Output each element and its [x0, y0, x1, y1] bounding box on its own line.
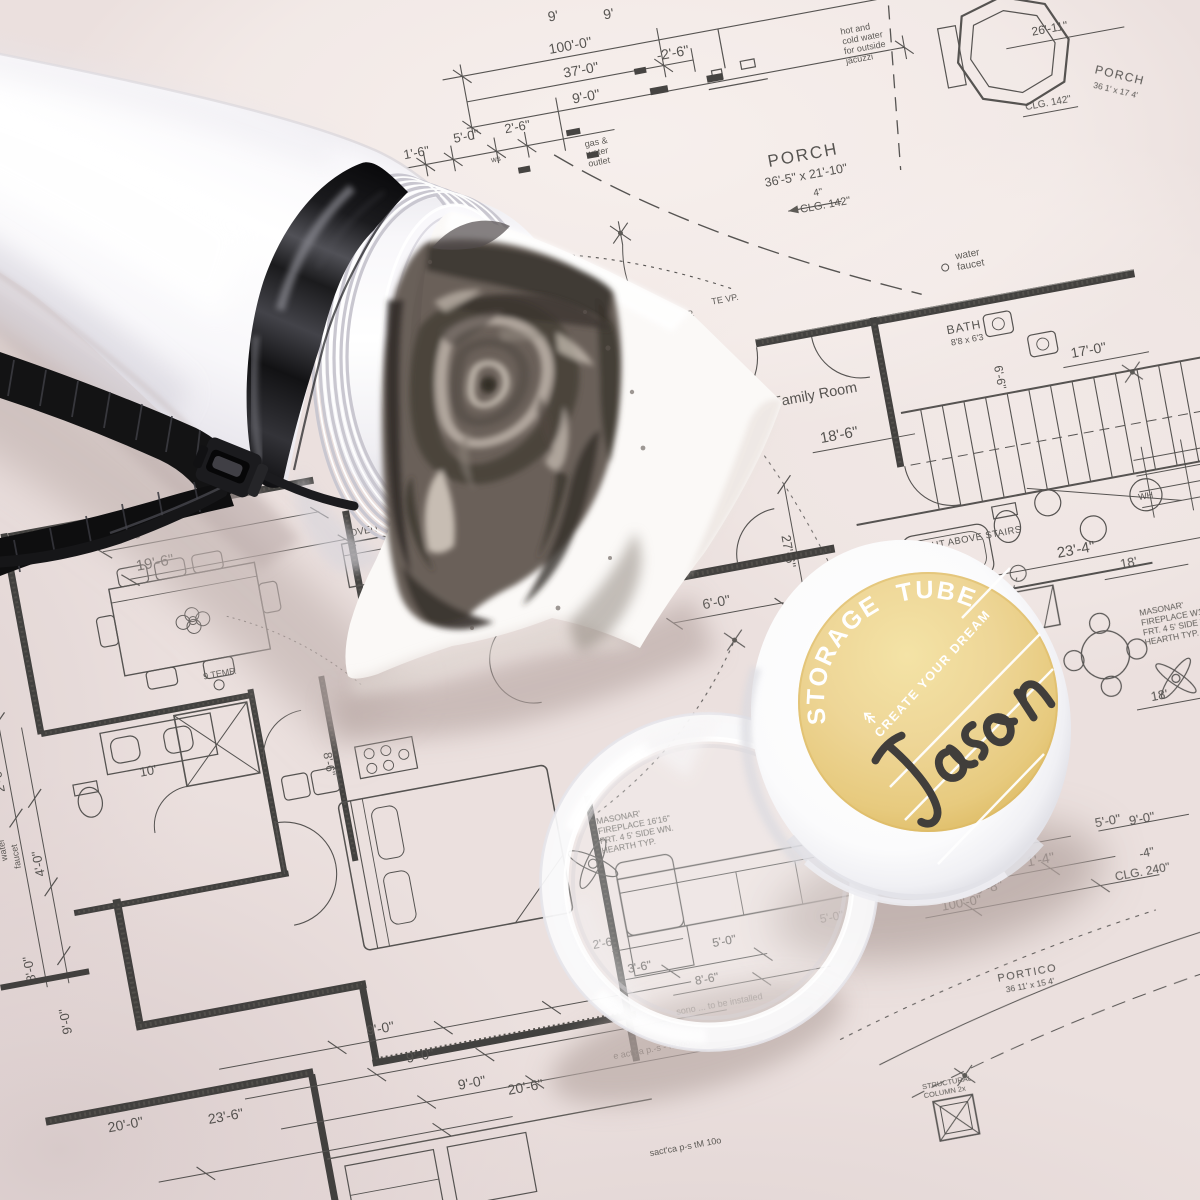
svg-text:-4": -4" [1138, 844, 1155, 860]
svg-text:18': 18' [1149, 686, 1168, 704]
svg-text:10': 10' [138, 762, 157, 780]
